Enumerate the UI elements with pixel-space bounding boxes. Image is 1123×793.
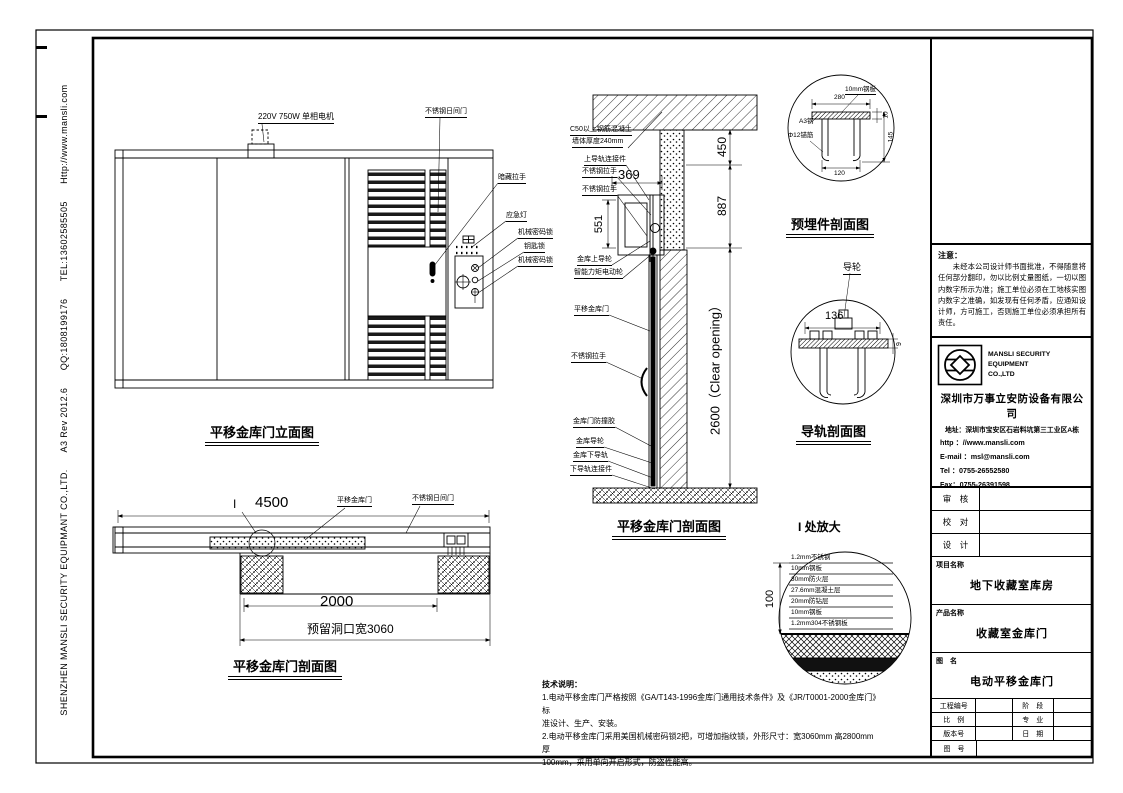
company-name-cn: 深圳市万事立安防设备有限公司 — [937, 391, 1087, 421]
layer-4: 27.6mm混凝土层 — [791, 587, 840, 594]
version-value — [976, 727, 1013, 740]
embed-steel-label: A3钢 — [799, 118, 813, 125]
rail-detail-caption: 导轨剖面图 — [796, 421, 871, 445]
plan-drawing — [113, 506, 490, 646]
technical-notes-line4: 100mm，采用单向开启形式，防盗性能高。 — [542, 756, 878, 769]
callout-lower-rail-connector: 下导轨连接件 — [570, 466, 612, 476]
scale-value — [976, 713, 1013, 726]
drawing-name-block: 图 名 电动平移金库门 — [932, 653, 1092, 699]
sheet-margin-company-strip: SHENZHEN MANSLI SECURITY EQUIPMANT CO.,L… — [59, 84, 69, 715]
callout-mech-lock-1: 机械密码锁 — [518, 229, 553, 239]
callout-hidden-handle: 暗藏拉手 — [498, 174, 526, 184]
row-check: 校 对 — [932, 511, 1092, 534]
company-address: 地址：深圳市宝安区石岩料坑第三工业区A栋 — [937, 424, 1087, 434]
drawing-no-row: 图 号 — [932, 741, 1092, 757]
layer-5: 20mm防钻层 — [791, 598, 829, 605]
title-block: 注意： 未经本公司设计师书面批准，不得随意将任何部分翻印，勿以比例丈量图纸，一切… — [930, 38, 1092, 757]
note-title: 注意： — [938, 250, 1086, 261]
technical-notes-line2: 准设计、生产、安装。 — [542, 717, 878, 730]
callout-ss-handle-1: 不锈钢拉手 — [582, 168, 617, 178]
title-block-spacer — [932, 38, 1092, 245]
row-design: 设 计 — [932, 534, 1092, 557]
section-dim-369: 369 — [618, 167, 640, 182]
product-name-label: 产品名称 — [936, 608, 964, 618]
embed-dim-145: 145 — [887, 132, 894, 143]
callout-sliding-door: 平移金库门 — [574, 306, 609, 316]
plan-day-gate-label: 不锈钢日间门 — [412, 495, 454, 505]
callout-lower-rail: 金库下导轨 — [573, 452, 608, 462]
callout-emergency-light: 应急灯 — [506, 212, 527, 222]
technical-notes-title: 技术说明： — [542, 678, 878, 691]
note-body: 未经本公司设计师书面批准，不得随意将任何部分翻印，勿以比例丈量图纸，一切以图内数… — [938, 261, 1086, 329]
embed-plate-label: 10mm钢板 — [845, 86, 876, 95]
title-block-note: 注意： 未经本公司设计师书面批准，不得随意将任何部分翻印，勿以比例丈量图纸，一切… — [932, 245, 1092, 338]
layer-1: 1.2mm不锈钢 — [791, 554, 830, 561]
motor-label: 220V 750W 单相电机 — [258, 113, 334, 124]
plan-reserved-opening-label: 预留洞口宽3060 — [307, 620, 394, 637]
row-review: 审 核 — [932, 488, 1092, 511]
product-name-block: 产品名称 收藏室金库门 — [932, 605, 1092, 653]
scale-label: 比 例 — [932, 713, 976, 726]
grid-row-1: 工程编号 阶 段 — [932, 699, 1092, 713]
project-no-label: 工程编号 — [932, 699, 976, 712]
callout-torque-motor-wheel: 智能力矩电动轮 — [574, 269, 623, 279]
title-block-company: MANSLI SECURITY EQUIPMENT CO.,LTD 深圳市万事立… — [932, 338, 1092, 488]
rail-dim-9: 9 — [896, 342, 904, 346]
company-logo — [937, 344, 983, 386]
drawing-no-label: 图 号 — [932, 741, 977, 757]
enlarged-dim-100: 100 — [764, 590, 776, 608]
project-no-value — [976, 699, 1013, 712]
rail-dim-136: 136 — [825, 310, 843, 322]
rail-wheel-label: 导轮 — [843, 263, 861, 275]
elevation-caption: 平移金库门立面图 — [205, 422, 319, 446]
callout-door-bumper: 金库门防撞胶 — [573, 418, 615, 428]
product-name-value: 收藏室金库门 — [932, 625, 1092, 641]
callout-mech-lock-2: 机械密码锁 — [518, 257, 553, 267]
plan-dim-4500: 4500 — [255, 494, 288, 511]
row-design-value — [980, 534, 1092, 556]
plan-caption: 平移金库门剖面图 — [228, 656, 342, 680]
elevation-drawing — [115, 118, 524, 388]
specialty-label: 专 业 — [1013, 713, 1054, 726]
row-review-label: 审 核 — [932, 488, 980, 510]
plan-door-label: 平移金库门 — [337, 497, 372, 507]
embed-anchor-label: Φ12锚筋 — [788, 132, 813, 139]
stage-value — [1054, 699, 1093, 712]
embed-dim-10: 10 — [882, 111, 889, 118]
drawing-name-label: 图 名 — [936, 656, 957, 666]
layer-2: 10mm钢板 — [791, 565, 822, 572]
callout-upper-rail-connector: 上导轨连接件 — [584, 156, 626, 166]
grid-row-2: 比 例 专 业 — [932, 713, 1092, 727]
date-value — [1054, 727, 1093, 740]
rail-detail-drawing — [791, 273, 898, 404]
version-label: 版本号 — [932, 727, 976, 740]
row-check-value — [980, 511, 1092, 533]
company-en-line3: CO.,LTD — [988, 370, 1050, 380]
callout-upper-guide-wheel: 金库上导轮 — [577, 256, 612, 266]
technical-notes-line3: 2.电动平移金库门采用美国机械密码锁2把，可增加指纹锁，外形尺寸：宽3060mm… — [542, 730, 878, 756]
grid-row-3: 版本号 日 期 — [932, 727, 1092, 741]
layer-6: 10mm钢板 — [791, 609, 822, 616]
row-review-value — [980, 488, 1092, 510]
wall-note-line1: C50以上钢筋混凝土 — [570, 126, 632, 136]
specialty-value — [1054, 713, 1093, 726]
layer-7: 1.2mm304不锈钢板 — [791, 620, 848, 627]
embed-detail-drawing — [788, 75, 894, 181]
plan-dim-2000: 2000 — [320, 593, 353, 610]
section-dim-551: 551 — [593, 215, 605, 233]
date-label: 日 期 — [1013, 727, 1054, 740]
row-check-label: 校 对 — [932, 511, 980, 533]
technical-notes-line1: 1.电动平移金库门严格按照《GA/T143-1996金库门通用技术条件》及《JR… — [542, 691, 878, 717]
layer-3: 30mm防火层 — [791, 576, 829, 583]
day-gate-label: 不锈钢日间门 — [425, 108, 467, 118]
project-name-label: 项目名称 — [936, 560, 964, 570]
company-http: http ：//www.mansli.com — [937, 438, 1087, 448]
project-name-block: 项目名称 地下收藏室库房 — [932, 557, 1092, 605]
drawing-no-value — [977, 741, 1092, 757]
company-email: E-mail ：msl@mansli.com — [937, 452, 1087, 462]
company-fax: Fax：0755-26391598 — [937, 480, 1087, 490]
drawing-name-value: 电动平移金库门 — [932, 673, 1092, 689]
company-en-line2: EQUIPMENT — [988, 360, 1050, 370]
drawing-sheet: SHENZHEN MANSLI SECURITY EQUIPMANT CO.,L… — [0, 0, 1123, 793]
plan-detail-marker: I — [233, 497, 236, 511]
section-dim-450: 450 — [715, 137, 729, 157]
embed-dim-120: 120 — [834, 170, 845, 177]
row-design-label: 设 计 — [932, 534, 980, 556]
callout-ss-handle-2: 不锈钢拉手 — [582, 186, 617, 196]
wall-note-line2: 墙体厚度240mm — [572, 138, 623, 148]
project-name-value: 地下收藏室库房 — [932, 577, 1092, 593]
company-en-line1: MANSLI SECURITY — [988, 350, 1050, 360]
embed-detail-caption: 预埋件剖面图 — [786, 214, 874, 238]
enlarged-caption: I 处放大 — [798, 518, 841, 535]
callout-guide-wheel: 金库导轮 — [576, 438, 604, 448]
callout-ss-handle-3: 不锈钢拉手 — [571, 353, 606, 363]
stage-label: 阶 段 — [1013, 699, 1054, 712]
company-tel: Tel ：0755-26552580 — [937, 466, 1087, 476]
section-dim-clear-opening: 2600（Clear opening） — [705, 299, 724, 435]
embed-dim-280: 280 — [834, 94, 845, 101]
callout-key-lock: 钥匙锁 — [524, 243, 545, 253]
technical-notes: 技术说明： 1.电动平移金库门严格按照《GA/T143-1996金库门通用技术条… — [542, 678, 878, 769]
section-caption: 平移金库门剖面图 — [612, 516, 726, 540]
section-dim-887: 887 — [715, 196, 729, 216]
